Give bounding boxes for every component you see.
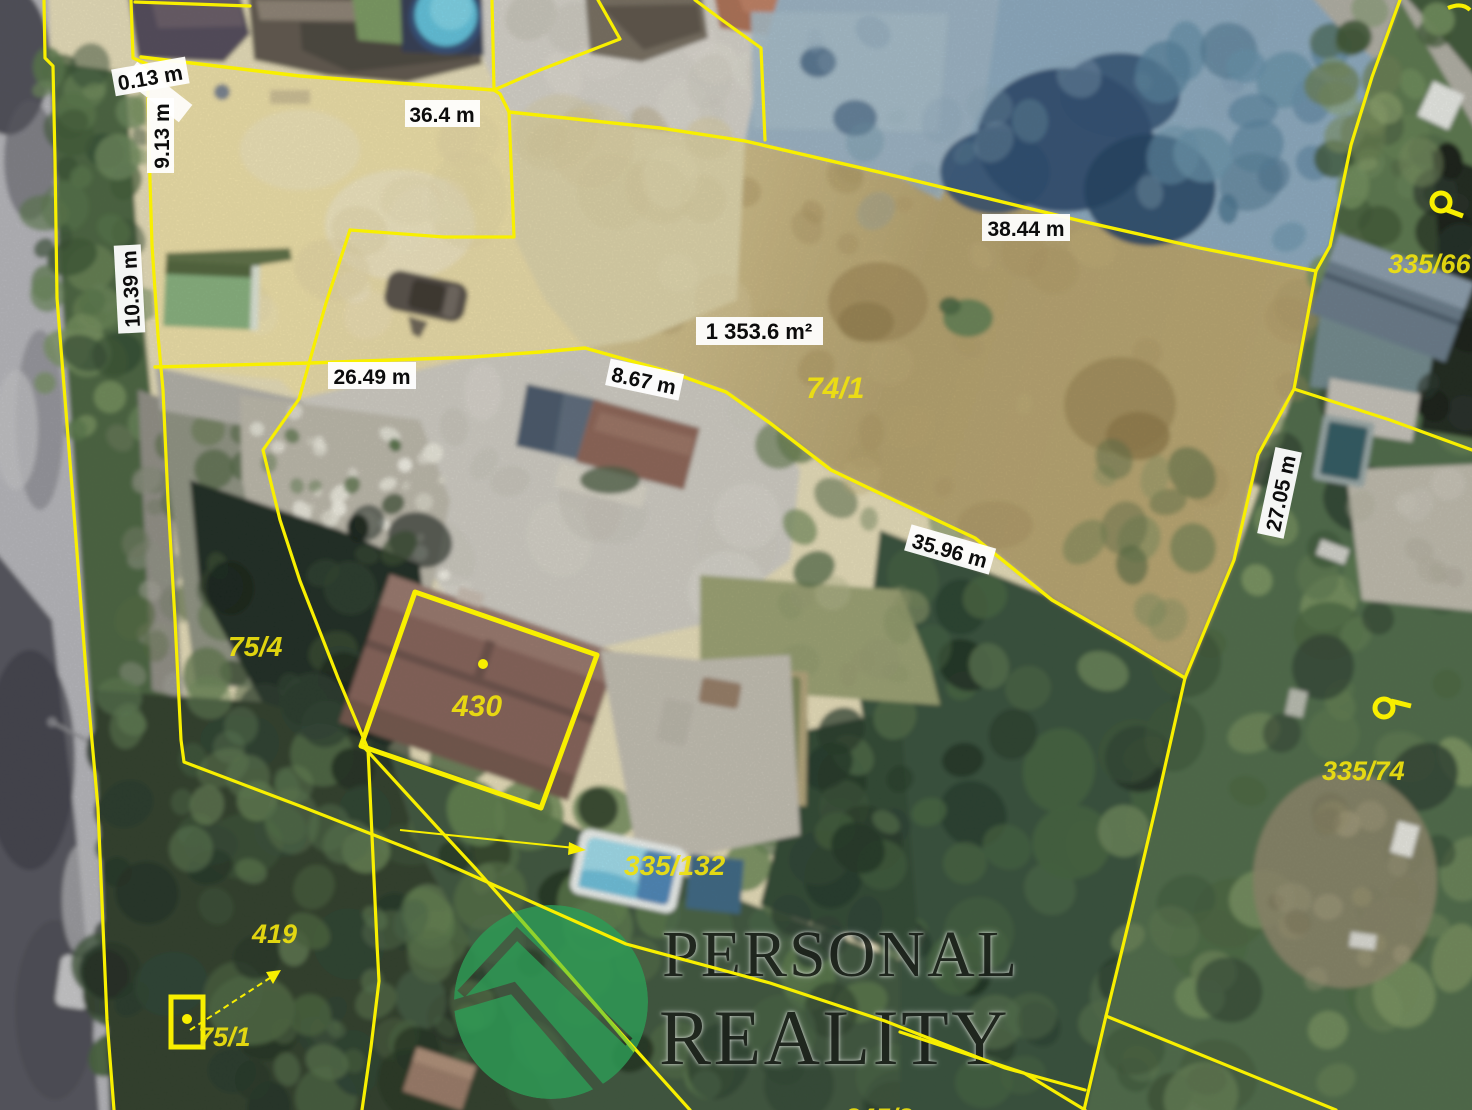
svg-text:9.13 m: 9.13 m <box>151 103 174 168</box>
svg-text:335/132: 335/132 <box>624 850 726 881</box>
svg-text:74/1: 74/1 <box>806 372 864 405</box>
svg-text:38.44 m: 38.44 m <box>987 218 1064 241</box>
svg-text:335/66: 335/66 <box>1388 249 1472 279</box>
svg-text:345/2: 345/2 <box>845 1103 913 1110</box>
svg-text:10.39 m: 10.39 m <box>118 250 145 328</box>
svg-text:419: 419 <box>251 919 297 949</box>
svg-text:75/4: 75/4 <box>228 631 283 662</box>
svg-text:430: 430 <box>451 690 502 723</box>
svg-text:335/74: 335/74 <box>1322 756 1405 786</box>
svg-text:PERSONAL: PERSONAL <box>662 918 1019 991</box>
svg-text:36.4 m: 36.4 m <box>409 104 474 127</box>
svg-text:1 353.6 m²: 1 353.6 m² <box>706 319 812 344</box>
svg-text:REALITY: REALITY <box>659 994 1010 1081</box>
svg-text:75/1: 75/1 <box>198 1022 251 1052</box>
svg-text:26.49 m: 26.49 m <box>333 366 410 389</box>
